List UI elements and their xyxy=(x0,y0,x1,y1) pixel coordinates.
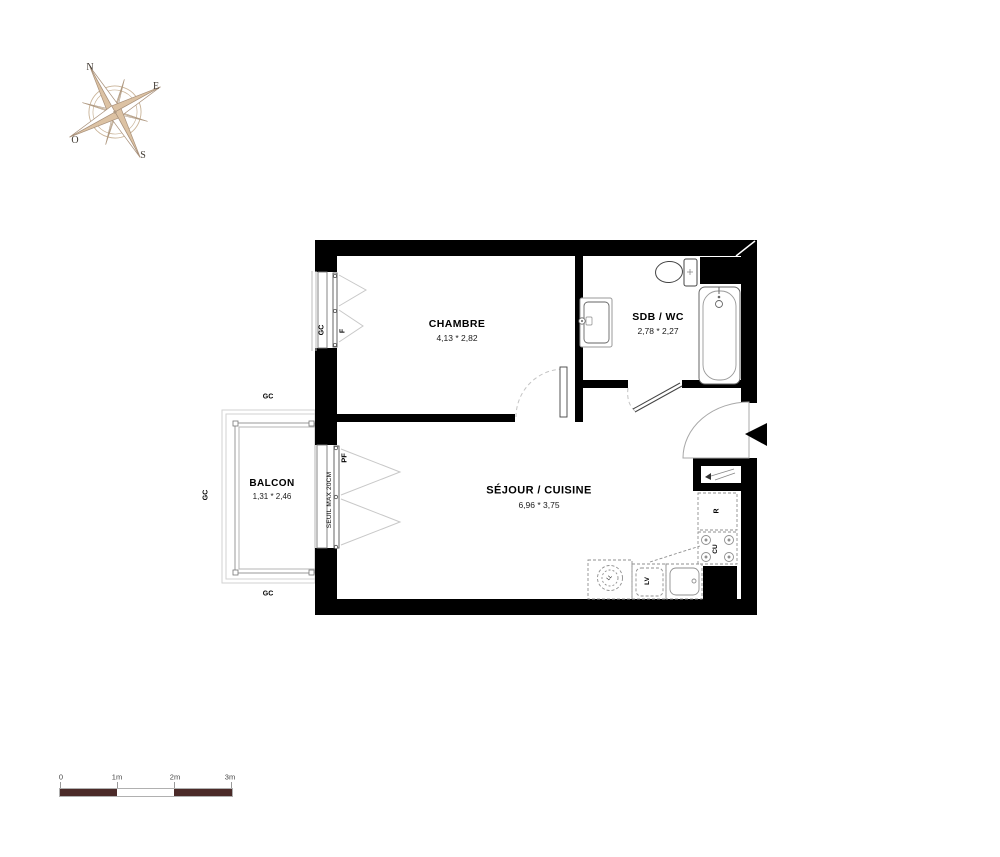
label-fridge: R xyxy=(714,508,721,513)
label-seuil-max: SEUIL MAX 20CM xyxy=(327,472,334,528)
scale-seg-dark xyxy=(174,789,232,796)
label-cooker: CU xyxy=(713,544,720,553)
washbasin xyxy=(579,298,612,347)
room-label-balcon: BALCON xyxy=(249,479,294,489)
scale-label-3m: 3m xyxy=(225,773,235,781)
label-pf: PF xyxy=(340,453,348,463)
scale-seg-light xyxy=(117,789,174,796)
compass-letter-o: O xyxy=(71,135,78,146)
room-dims-balcon: 1,31 * 2,46 xyxy=(253,493,292,501)
wall-left-upper xyxy=(315,240,337,272)
door-sdb xyxy=(628,383,682,412)
room-label-sejour: SÉJOUR / CUISINE xyxy=(486,486,591,497)
wall-right-lower xyxy=(741,458,757,615)
compass-rose: N E O S xyxy=(44,41,185,182)
label-gc-window: GC xyxy=(319,325,326,336)
toilet xyxy=(655,259,697,286)
wall-top xyxy=(315,240,757,256)
room-dims-chambre: 4,13 * 2,82 xyxy=(436,334,477,343)
counter-line xyxy=(650,546,700,562)
scale-seg-dark xyxy=(60,789,117,796)
casement-swing xyxy=(341,449,400,495)
floorplan-drawing: N E O S xyxy=(0,0,1000,857)
entrance-door xyxy=(683,402,767,458)
wall-bottom xyxy=(315,599,757,615)
label-gc-left: GC xyxy=(203,490,210,501)
electrical-panel-icon xyxy=(705,469,735,480)
compass-letter-s: S xyxy=(140,150,146,161)
label-f-window: F xyxy=(340,329,347,333)
label-gc-top: GC xyxy=(263,394,274,401)
duct-kitchen xyxy=(703,566,737,599)
room-label-sdb: SDB / WC xyxy=(632,312,684,323)
wall-left-lower xyxy=(315,548,337,615)
wall-closet-left xyxy=(693,466,701,491)
walls xyxy=(315,240,757,615)
room-dims-sejour: 6,96 * 3,75 xyxy=(518,501,559,510)
duct-sdb xyxy=(700,257,741,284)
wall-right-upper xyxy=(741,240,757,403)
wall-closet-top xyxy=(693,458,741,466)
wall-closet-bottom xyxy=(701,483,741,491)
wall-chambre-sejour xyxy=(337,414,515,422)
scale-label-2m: 2m xyxy=(170,773,180,781)
casement-swing xyxy=(339,275,366,306)
scale-label-0: 0 xyxy=(59,773,63,781)
compass-letter-n: N xyxy=(86,62,93,73)
label-dishwasher: LV xyxy=(645,577,652,585)
scale-bar-track xyxy=(59,788,233,797)
window-f xyxy=(312,271,366,351)
scale-label-1m: 1m xyxy=(112,773,122,781)
door-chambre xyxy=(516,367,567,417)
wall-sdb-bottom-left xyxy=(583,380,628,388)
room-label-chambre: CHAMBRE xyxy=(429,319,485,330)
wall-left-middle xyxy=(315,348,337,445)
label-gc-bottom: GC xyxy=(263,591,274,598)
floorplan-page: { "compass": { "n": "N", "e": "E", "s": … xyxy=(0,0,1000,857)
casement-swing xyxy=(341,499,400,545)
compass-star xyxy=(44,41,185,182)
casement-swing xyxy=(339,310,363,342)
room-dims-sdb: 2,78 * 2,27 xyxy=(637,327,678,336)
bathtub xyxy=(699,287,740,384)
compass-letter-e: E xyxy=(153,81,159,92)
